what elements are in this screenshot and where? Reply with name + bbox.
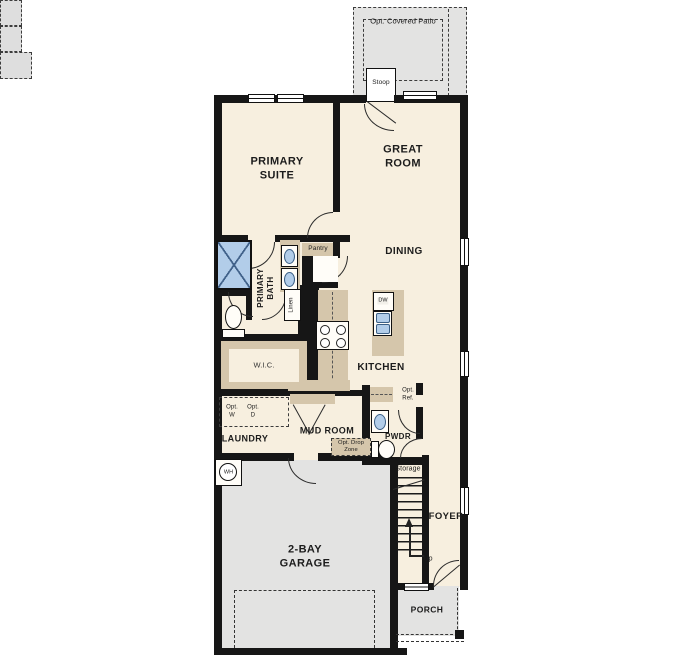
window-icon xyxy=(277,94,304,103)
storage-label: Storage xyxy=(395,466,420,475)
wic-label: W.I.C. xyxy=(253,360,274,369)
sink-basin xyxy=(284,272,295,287)
up-arrow-head xyxy=(405,518,413,527)
mud-room-label: MUD ROOM xyxy=(300,425,354,436)
optional-washer-box xyxy=(0,0,22,26)
optional-dryer-box xyxy=(0,26,22,52)
porch-edge-bottom-outer xyxy=(396,641,464,642)
primary-suite-label: PRIMARY SUITE xyxy=(250,155,303,183)
sink-basin xyxy=(376,324,390,334)
porch-edge-bottom xyxy=(396,634,458,635)
optional-refrigerator-box xyxy=(0,52,32,79)
dining-label: DINING xyxy=(385,246,422,259)
laundry-label: LAUNDRY xyxy=(222,433,268,444)
wall-garage-bottom xyxy=(214,648,407,655)
pantry-label: Pantry xyxy=(308,245,327,253)
cabinet-dash-line xyxy=(371,394,392,395)
great-room-label: GREAT ROOM xyxy=(383,143,423,171)
opt-dryer-label: Opt. D xyxy=(247,405,259,420)
window-icon xyxy=(403,91,437,100)
opt-washer-label: Opt. W xyxy=(226,405,238,420)
wall-suite-greatroom xyxy=(333,103,340,212)
toilet-icon xyxy=(225,305,242,329)
up-arrow-icon xyxy=(409,526,411,556)
stove-burner xyxy=(336,325,346,335)
porch-edge-right xyxy=(457,588,458,634)
kitchen-label: KITCHEN xyxy=(357,362,404,375)
shower-icon xyxy=(216,240,252,290)
powder-toilet-icon xyxy=(378,440,395,459)
opt-ref-label: Opt. Ref. xyxy=(402,388,414,403)
window-icon xyxy=(460,238,469,266)
primary-bath-label: PRIMARY BATH xyxy=(256,268,276,307)
window-icon xyxy=(460,351,469,377)
garage-door-outline xyxy=(234,590,375,648)
foyer-label: FOYER xyxy=(429,511,464,523)
wall-pwdr-right-stub xyxy=(416,383,423,395)
patio-label: Opt. Covered Patio xyxy=(370,16,436,25)
drop-zone-label: Opt. Drop Zone xyxy=(338,440,364,454)
garage-label: 2-BAY GARAGE xyxy=(280,543,331,571)
up-arrow-tail xyxy=(409,555,424,557)
dishwasher-label: DW xyxy=(377,298,388,305)
mudroom-bench xyxy=(290,394,335,404)
stove-burner xyxy=(336,338,346,348)
stoop-label: Stoop xyxy=(372,79,390,87)
porch-label: PORCH xyxy=(411,605,444,616)
toilet-tank xyxy=(222,329,245,338)
pantry-interior xyxy=(313,256,338,282)
floor-plan: Opt. Covered Patio Stoop xyxy=(0,0,687,661)
window-icon xyxy=(404,583,429,591)
patio-column-line xyxy=(448,9,449,96)
stove-burner xyxy=(320,325,330,335)
sink-basin xyxy=(374,414,386,430)
water-heater-label: WH xyxy=(224,469,233,476)
window-icon xyxy=(248,94,275,103)
up-label: Up xyxy=(423,556,432,565)
linen-label: Linen xyxy=(288,297,296,312)
sink-basin xyxy=(376,313,390,323)
stove-burner xyxy=(320,338,330,348)
porch-column xyxy=(455,630,464,639)
sink-basin xyxy=(284,249,295,264)
